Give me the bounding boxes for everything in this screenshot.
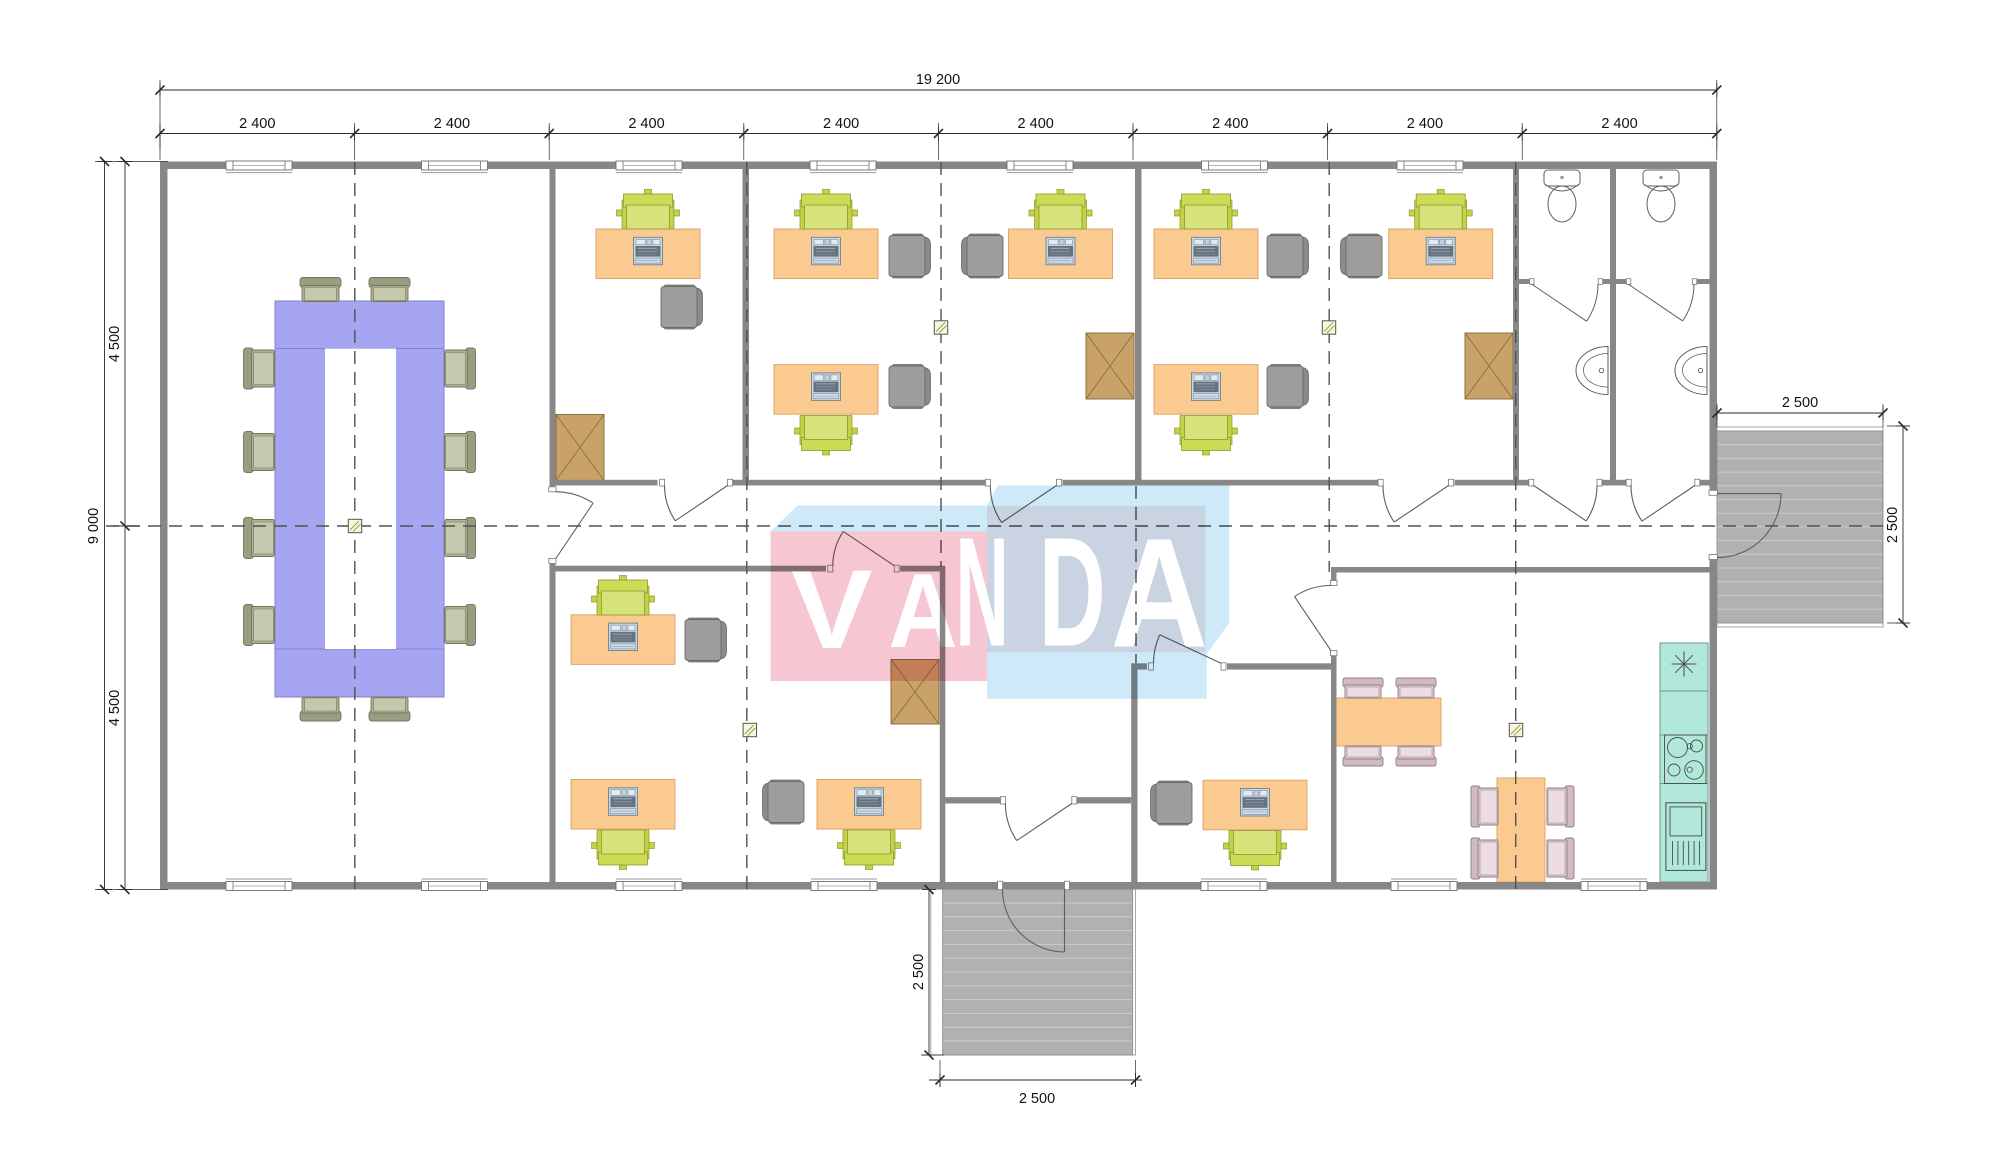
svg-text:2 500: 2 500 [1019,1091,1055,1107]
svg-text:2 400: 2 400 [239,116,275,132]
svg-text:2 400: 2 400 [1018,116,1054,132]
svg-text:4 500: 4 500 [107,326,123,362]
svg-text:19 200: 19 200 [916,72,960,88]
svg-text:2 400: 2 400 [1407,116,1443,132]
svg-text:2 400: 2 400 [1212,116,1248,132]
svg-text:2 500: 2 500 [911,954,927,990]
svg-text:2 400: 2 400 [823,116,859,132]
svg-text:9 000: 9 000 [86,508,102,544]
svg-text:2 400: 2 400 [1601,116,1637,132]
svg-text:2 500: 2 500 [1885,507,1901,543]
svg-text:2 400: 2 400 [628,116,664,132]
svg-text:2 400: 2 400 [434,116,470,132]
svg-text:2 500: 2 500 [1782,395,1818,411]
svg-text:4 500: 4 500 [107,690,123,726]
